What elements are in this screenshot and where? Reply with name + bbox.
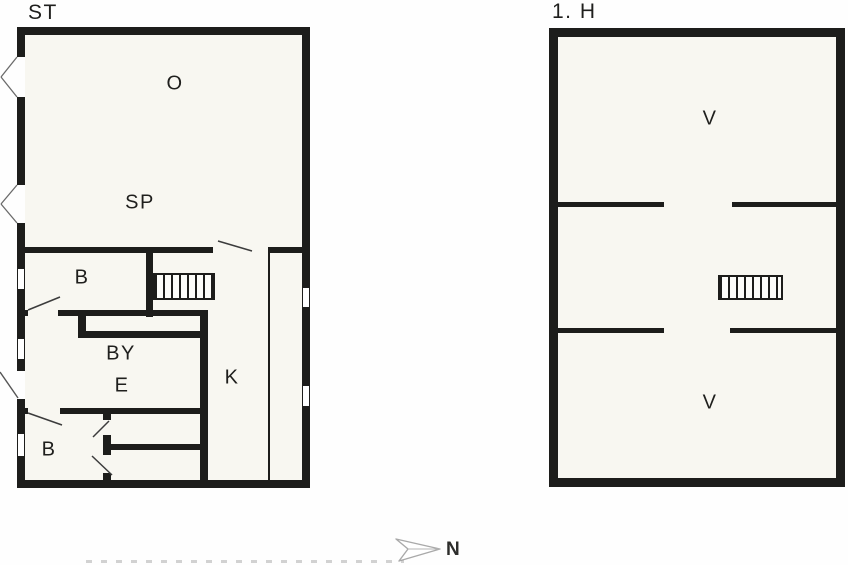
left-plan-title: ST [28, 1, 58, 25]
wall-interior [103, 414, 111, 420]
window-sash-line [1, 77, 17, 97]
wall-interior [558, 202, 664, 207]
window [17, 338, 25, 360]
window [302, 287, 310, 308]
left-floorplan: O SP B BY E K B [17, 27, 310, 488]
room-label-O: O [166, 73, 183, 96]
stairs [153, 273, 215, 300]
wall-interior [25, 408, 28, 414]
wall-outer-top [549, 28, 845, 37]
wall-interior [78, 331, 200, 338]
room-label-SP: SP [125, 192, 155, 215]
wall-outer-right [302, 27, 310, 488]
north-arrow-shape [396, 539, 440, 561]
window-sash-line [1, 185, 17, 204]
wall-interior [108, 444, 204, 450]
room-label-K: K [225, 367, 240, 390]
wall-interior [200, 310, 208, 480]
wall-outer-top [17, 27, 310, 35]
wall-interior [146, 253, 153, 317]
window-opening [17, 185, 25, 223]
room-label-BY: BY [106, 343, 136, 366]
wall-interior [730, 328, 836, 333]
door-swing [0, 372, 18, 398]
wall-outer-right [836, 28, 845, 487]
wall-outer-bottom [17, 480, 310, 488]
wall-interior [60, 408, 200, 414]
room-label-B-upper: B [75, 267, 90, 290]
window [302, 385, 310, 407]
window-opening [17, 57, 25, 97]
wall-interior [268, 247, 302, 253]
wall-outer-bottom [549, 478, 845, 487]
wall-interior [25, 247, 213, 253]
window-sash-line [1, 57, 17, 77]
room-label-B-lower: B [42, 439, 57, 462]
right-plan-title: 1. H [552, 0, 597, 24]
partition-line [268, 253, 270, 480]
wall-interior [25, 310, 28, 316]
wall-interior [558, 328, 664, 333]
wall-interior [103, 473, 111, 480]
north-label: N [446, 539, 460, 561]
room-label-V-south: V [703, 392, 718, 415]
window [17, 433, 25, 457]
floorplan-sheet: { "colors":{ "wall":"#1d1d1b","floor":"#… [0, 0, 848, 565]
cropped-text-artifact [86, 560, 404, 563]
room-label-V-north: V [703, 108, 718, 131]
window [17, 268, 25, 290]
wall-interior [732, 202, 836, 207]
right-floorplan: V V [549, 28, 845, 487]
window-sash-line [1, 204, 17, 223]
entrance-door-opening [17, 371, 25, 399]
stairs [718, 275, 783, 300]
wall-outer-left [549, 28, 558, 487]
room-label-E: E [115, 375, 130, 398]
